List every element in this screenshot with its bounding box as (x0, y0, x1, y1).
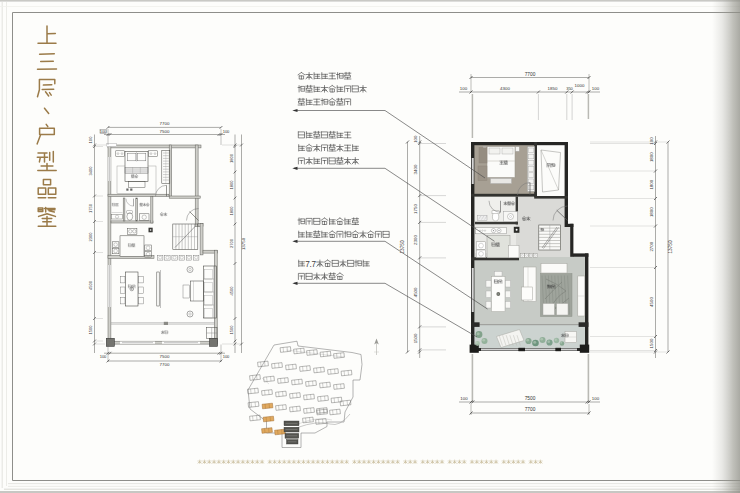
svg-text:2700: 2700 (649, 241, 654, 251)
svg-text:350: 350 (566, 86, 573, 91)
svg-text:3400: 3400 (413, 164, 418, 174)
svg-text:100: 100 (223, 129, 230, 134)
svg-text:100: 100 (413, 135, 418, 143)
svg-text:13750: 13750 (241, 237, 246, 250)
svg-text:1500: 1500 (88, 325, 93, 335)
svg-text:1800: 1800 (229, 206, 234, 216)
svg-text:4500: 4500 (88, 280, 93, 290)
svg-text:1800: 1800 (649, 207, 654, 217)
svg-text:100: 100 (223, 354, 230, 359)
svg-text:100: 100 (100, 129, 107, 134)
svg-text:4300: 4300 (500, 86, 510, 91)
svg-text:13750: 13750 (668, 240, 673, 253)
svg-text:1800: 1800 (649, 152, 654, 162)
svg-text:2700: 2700 (229, 238, 234, 248)
svg-text:100: 100 (100, 354, 107, 359)
svg-text:1500: 1500 (413, 333, 418, 343)
svg-text:100: 100 (460, 86, 468, 91)
svg-text:1800: 1800 (229, 180, 234, 190)
svg-text:100: 100 (649, 137, 654, 145)
svg-text:100: 100 (592, 396, 600, 401)
svg-text:3400: 3400 (88, 166, 93, 176)
svg-text:1800: 1800 (649, 179, 654, 189)
svg-text:1750: 1750 (88, 203, 93, 213)
svg-text:4500: 4500 (413, 287, 418, 297)
svg-text:4500: 4500 (229, 286, 234, 296)
svg-text:13750: 13750 (400, 240, 405, 253)
svg-text:7500: 7500 (160, 129, 170, 134)
svg-text:2300: 2300 (413, 235, 418, 245)
svg-text:100: 100 (592, 86, 600, 91)
svg-text:100: 100 (88, 136, 93, 144)
svg-text:7700: 7700 (160, 362, 170, 367)
svg-text:100: 100 (460, 396, 468, 401)
svg-text:1800: 1800 (229, 153, 234, 163)
svg-text:2300: 2300 (88, 232, 93, 242)
svg-text:7500: 7500 (160, 354, 170, 359)
svg-text:1500: 1500 (229, 325, 234, 335)
svg-text:7700: 7700 (160, 121, 170, 126)
svg-text:7700: 7700 (525, 407, 536, 412)
svg-text:1000: 1000 (575, 83, 585, 88)
svg-text:1750: 1750 (413, 204, 418, 214)
svg-text:7.7: 7.7 (305, 260, 316, 269)
svg-text:4500: 4500 (649, 297, 654, 307)
svg-text:1500: 1500 (649, 338, 654, 348)
svg-text:7500: 7500 (525, 396, 536, 401)
svg-text:7700: 7700 (525, 72, 536, 77)
svg-text:1850: 1850 (548, 86, 558, 91)
